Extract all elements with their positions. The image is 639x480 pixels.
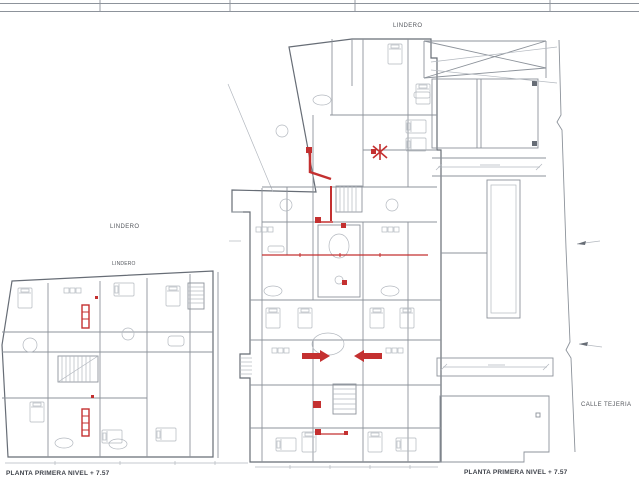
main-building-outline: [228, 39, 441, 462]
label-lindero-wing: LINDERO: [112, 261, 136, 267]
southeast-dimension-band: [437, 358, 553, 376]
label-lindero-left: LINDERO: [110, 224, 139, 230]
label-lindero-top: LINDERO: [393, 23, 422, 29]
dimension-marks: [5, 212, 438, 469]
red-marker-star: [371, 144, 387, 160]
red-markers-lower: [313, 401, 348, 435]
staircase-upper: [336, 186, 362, 212]
east-terrace: [431, 47, 557, 148]
plan-sheet: LINDERO LINDERO LINDERO CALLE TEJERIA PL…: [0, 0, 639, 480]
furniture-west-wing: [18, 283, 184, 449]
staircase-lower: [333, 384, 356, 414]
west-wing-walls: [2, 274, 213, 457]
staircase-west-edge: [240, 358, 252, 374]
street-boundary: [557, 40, 602, 452]
main-building-walls: [250, 39, 441, 462]
west-wing-stair: [58, 356, 98, 382]
top-border-strip: [0, 0, 639, 12]
east-dimension-band: [432, 158, 546, 176]
ramp-bracing: [424, 41, 546, 78]
central-core: [312, 225, 360, 355]
southeast-terrace: [440, 396, 549, 462]
caption-plan-title-left: PLANTA PRIMERA NIVEL + 7.57: [6, 470, 109, 477]
east-lightwell: [441, 180, 520, 318]
red-arrows-corridor: [302, 350, 382, 362]
red-route-upper: [306, 147, 331, 179]
furniture-main: [256, 44, 430, 452]
red-shaft-center: [315, 186, 347, 285]
floor-plan-drawing: [0, 0, 639, 480]
caption-plan-title-right: PLANTA PRIMERA NIVEL + 7.57: [464, 469, 567, 476]
label-calle-tejeria: CALLE TEJERIA: [581, 402, 631, 408]
